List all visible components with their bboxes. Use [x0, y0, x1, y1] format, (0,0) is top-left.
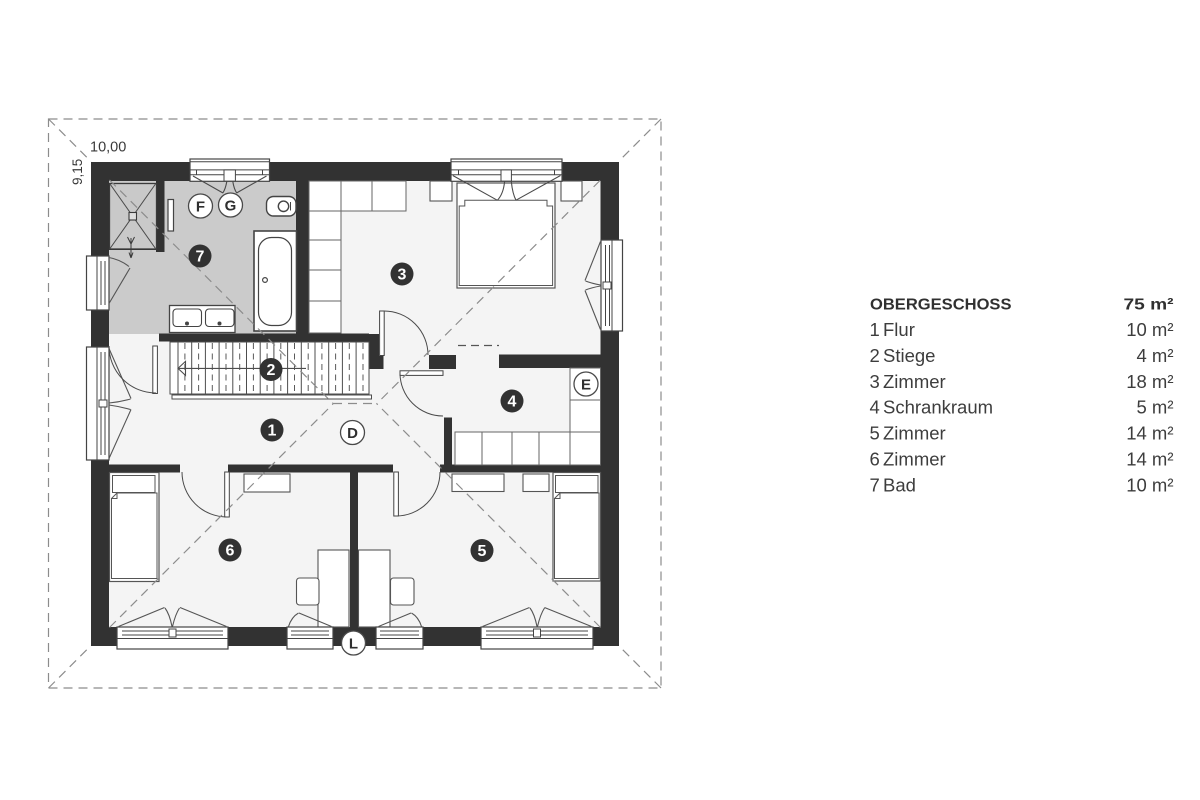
svg-text:Flur: Flur: [883, 319, 915, 340]
svg-text:10,00: 10,00: [90, 140, 126, 156]
svg-text:OBERGESCHOSS: OBERGESCHOSS: [870, 297, 1012, 314]
svg-text:5 m²: 5 m²: [1137, 397, 1174, 418]
svg-text:14 m²: 14 m²: [1126, 448, 1173, 469]
svg-text:5: 5: [478, 543, 487, 560]
svg-text:6: 6: [870, 448, 880, 469]
svg-text:14 m²: 14 m²: [1126, 423, 1173, 444]
svg-text:3: 3: [870, 371, 880, 392]
svg-text:10 m²: 10 m²: [1126, 474, 1173, 495]
svg-text:Bad: Bad: [883, 474, 916, 495]
svg-text:4: 4: [870, 397, 880, 418]
svg-text:3: 3: [398, 267, 407, 284]
svg-text:2: 2: [870, 345, 880, 366]
svg-text:G: G: [225, 198, 237, 215]
svg-text:Zimmer: Zimmer: [883, 423, 946, 444]
svg-text:9,15: 9,15: [70, 159, 85, 185]
svg-text:1: 1: [268, 423, 277, 440]
svg-text:Stiege: Stiege: [883, 345, 935, 366]
svg-text:18 m²: 18 m²: [1126, 371, 1173, 392]
svg-text:2: 2: [267, 362, 276, 379]
svg-text:75 m²: 75 m²: [1124, 297, 1174, 314]
svg-text:4 m²: 4 m²: [1137, 345, 1174, 366]
svg-text:6: 6: [226, 543, 235, 560]
svg-text:Schrankraum: Schrankraum: [883, 397, 993, 418]
svg-text:7: 7: [196, 249, 205, 266]
svg-text:D: D: [347, 425, 358, 442]
svg-text:5: 5: [870, 423, 880, 444]
svg-text:4: 4: [508, 394, 517, 411]
svg-text:10 m²: 10 m²: [1126, 319, 1173, 340]
svg-text:E: E: [581, 377, 591, 394]
svg-text:Zimmer: Zimmer: [883, 371, 946, 392]
svg-text:Zimmer: Zimmer: [883, 448, 946, 469]
svg-text:1: 1: [870, 319, 880, 340]
svg-text:L: L: [349, 636, 358, 653]
svg-text:7: 7: [870, 474, 880, 495]
svg-text:F: F: [196, 199, 205, 216]
